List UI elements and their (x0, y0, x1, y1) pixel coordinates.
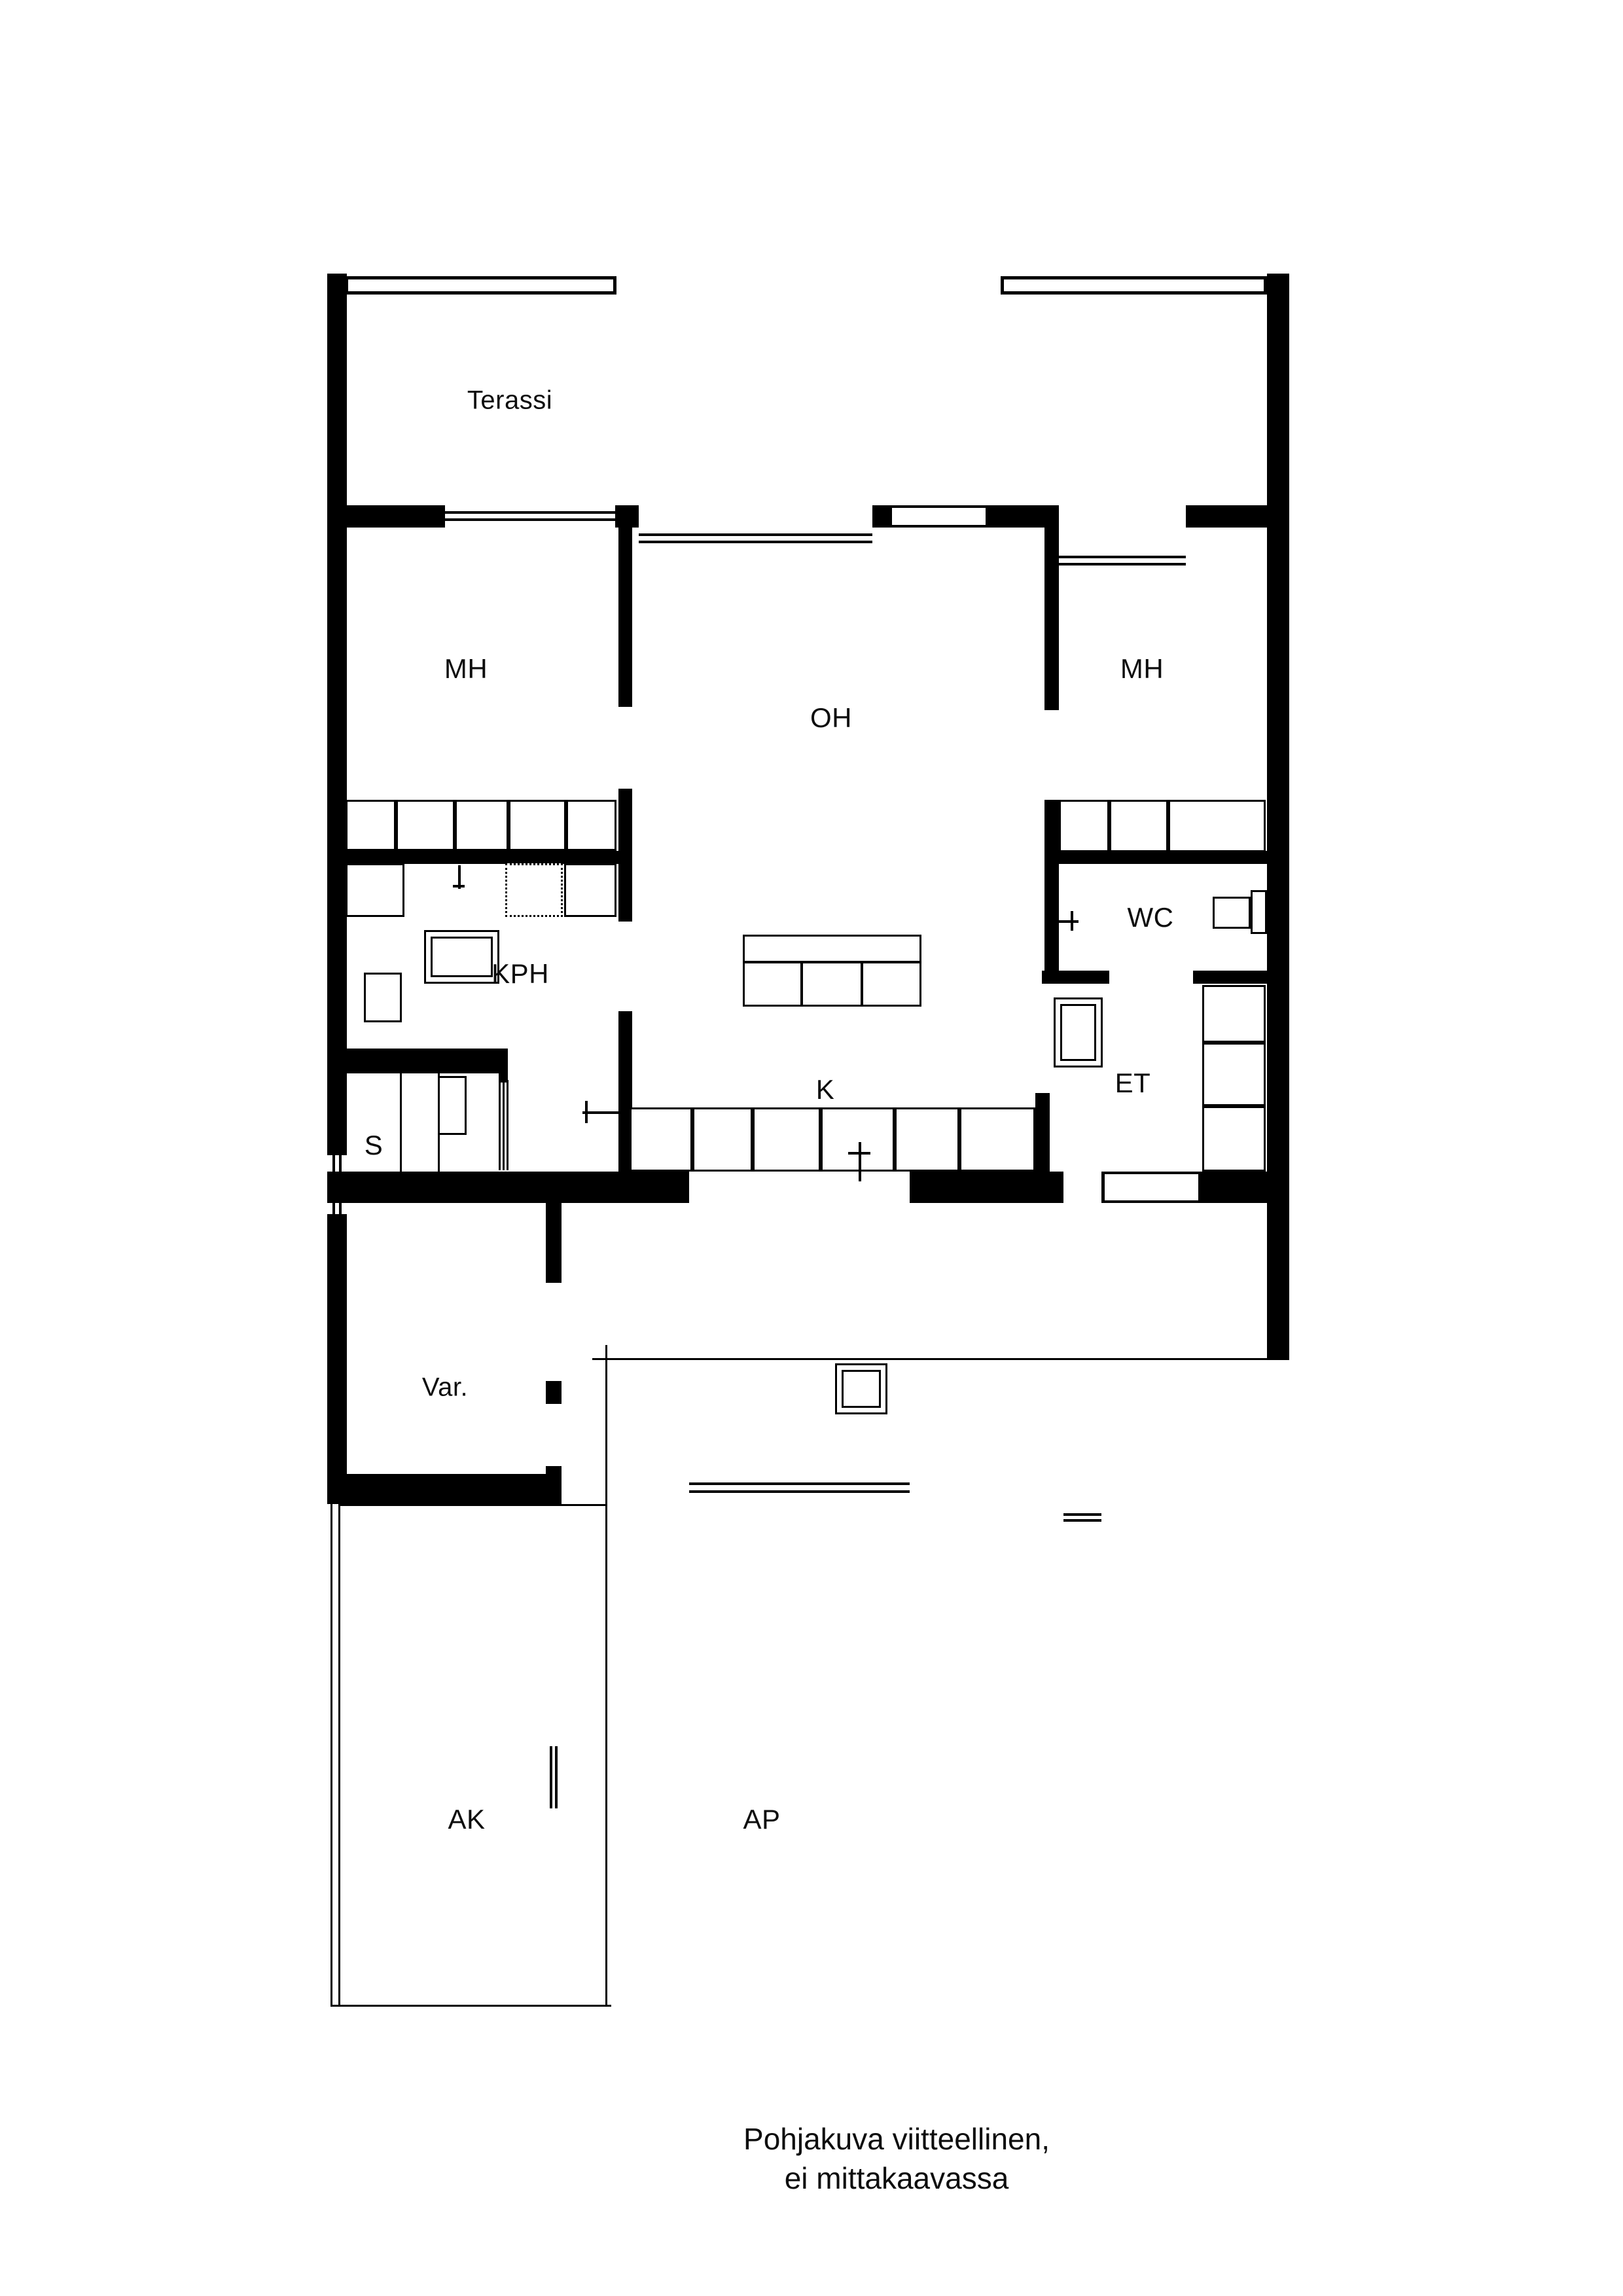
closet-mh-right-3 (1168, 800, 1266, 852)
room-label-et: ET (1115, 1067, 1151, 1099)
wall-wc-west (1044, 800, 1059, 984)
wc-toilet-tank (1251, 890, 1267, 934)
ak-top-line (338, 1504, 606, 1506)
room-label-mh-left: MH (444, 653, 488, 685)
wall-north-c (872, 505, 892, 528)
kph-cabinet-right (564, 863, 616, 917)
et-closet-1 (1202, 985, 1266, 1043)
ak-right-line (605, 1358, 607, 2007)
room-label-ap: AP (743, 1804, 780, 1835)
wc-toilet-bowl (1213, 897, 1251, 929)
kph-shower (424, 930, 499, 984)
sauna-stove (438, 1076, 467, 1135)
kph-shower-faucet-tick (453, 885, 465, 888)
wall-closets-right-south (1054, 851, 1289, 864)
room-label-wc: WC (1128, 902, 1174, 933)
room-label-mh-right: MH (1120, 653, 1164, 685)
wall-oh-mhleft-upper (618, 528, 632, 707)
k-counter-cell-1 (630, 1107, 692, 1172)
disclaimer-line-1: Pohjakuva viitteellinen, (743, 2121, 1050, 2157)
room-label-terassi: Terassi (467, 386, 552, 416)
closet-mh-left-1 (346, 800, 396, 851)
wall-oh-mhright-upper (1044, 528, 1059, 710)
window-mh-left-north (445, 505, 615, 528)
ap-boundary-top-line (605, 1358, 1289, 1360)
sauna-door-line-2 (503, 1080, 505, 1170)
closet-mh-left-5 (566, 800, 616, 851)
sauna-door-line-1 (499, 1080, 501, 1170)
wall-north-a (327, 505, 445, 528)
oh-island-divider-1 (800, 961, 803, 1007)
wall-left-outer (327, 274, 347, 1504)
wall-var-east-mid (546, 1381, 562, 1404)
terrace-door-sill-bottom (892, 525, 986, 528)
wall-wc-south-a (1042, 971, 1109, 984)
wall-south-b (910, 1172, 1063, 1203)
wc-sink (1054, 997, 1103, 1067)
oh-island-shelf-line (743, 961, 921, 963)
ak-left-line-inner (338, 1504, 340, 2007)
kph-washbasin (364, 973, 402, 1022)
wc-sink-faucet-stem (1054, 920, 1079, 923)
ak-bottom-line (330, 2005, 611, 2007)
ap-corner-tick-left (592, 1358, 605, 1360)
wall-closets-left-south (327, 851, 632, 864)
room-label-kph: KPH (491, 958, 549, 990)
k-counter-cell-5 (895, 1107, 959, 1172)
closet-mh-left-4 (508, 800, 566, 851)
floorplan-shapes-layer (0, 0, 1623, 404)
k-counter-cell-4 (821, 1107, 895, 1172)
window-oh-north (639, 528, 872, 550)
wall-south-a (327, 1172, 689, 1203)
wall-kph-s-divider (327, 1049, 508, 1073)
sauna-door-line-3 (507, 1080, 508, 1170)
k-sink-faucet-stem (859, 1142, 861, 1181)
railing-terrace-right (1001, 276, 1267, 295)
kph-door-leaf-tick (585, 1101, 588, 1123)
entry-door-sill-top (1105, 1172, 1198, 1174)
terrace-door-sill-top (892, 505, 986, 508)
ap-corner-tick-up (605, 1345, 607, 1358)
k-counter-cell-6 (959, 1107, 1035, 1172)
room-label-var: Var. (422, 1373, 468, 1403)
ak-left-line-outer (330, 1504, 332, 2007)
disclaimer-line-2: ei mittakaavassa (785, 2161, 1009, 2196)
wall-var-south (327, 1474, 562, 1504)
wall-north-d (986, 505, 1059, 528)
k-sink (835, 1363, 887, 1414)
k-sink-faucet-tick (848, 1152, 870, 1155)
wall-north-e (1186, 505, 1289, 528)
wall-south-c (1198, 1172, 1289, 1203)
railing-terrace-left (345, 276, 616, 295)
room-label-oh: OH (810, 702, 852, 734)
kph-cabinet-left (346, 863, 404, 917)
et-closet-2 (1202, 1043, 1266, 1106)
closet-mh-left-2 (396, 800, 455, 851)
room-label-ak: AK (448, 1804, 485, 1835)
k-counter-cell-3 (753, 1107, 821, 1172)
wall-var-east-upper (546, 1203, 562, 1283)
wall-north-b (615, 505, 639, 528)
et-closet-3 (1202, 1106, 1266, 1172)
window-var-east (546, 1746, 562, 1808)
entry-steps (1063, 1509, 1101, 1527)
room-label-s: S (365, 1130, 383, 1161)
closet-mh-right-2 (1109, 800, 1168, 852)
room-label-k: K (816, 1074, 835, 1105)
wc-sink-faucet-tick (1071, 911, 1073, 931)
oh-island-divider-2 (861, 961, 863, 1007)
kph-door-leaf-line (582, 1111, 630, 1114)
k-counter-cell-2 (692, 1107, 753, 1172)
sauna-bench-line-1 (400, 1073, 402, 1172)
wall-south-sliver (1101, 1172, 1105, 1203)
window-mh-right-north (1059, 550, 1186, 572)
window-k-south (689, 1476, 910, 1499)
closet-mh-right-1 (1059, 800, 1109, 852)
wall-wc-south-b (1193, 971, 1289, 984)
kph-appliance-reserved (505, 863, 563, 917)
entry-door-sill-bottom (1105, 1200, 1198, 1203)
wall-et-k-stub (1035, 1093, 1050, 1172)
oh-island (743, 935, 921, 1007)
floorplan-page: Terassi MH OH MH WC KPH S K ET Var. AK A… (0, 0, 1623, 2296)
closet-mh-left-3 (455, 800, 508, 851)
